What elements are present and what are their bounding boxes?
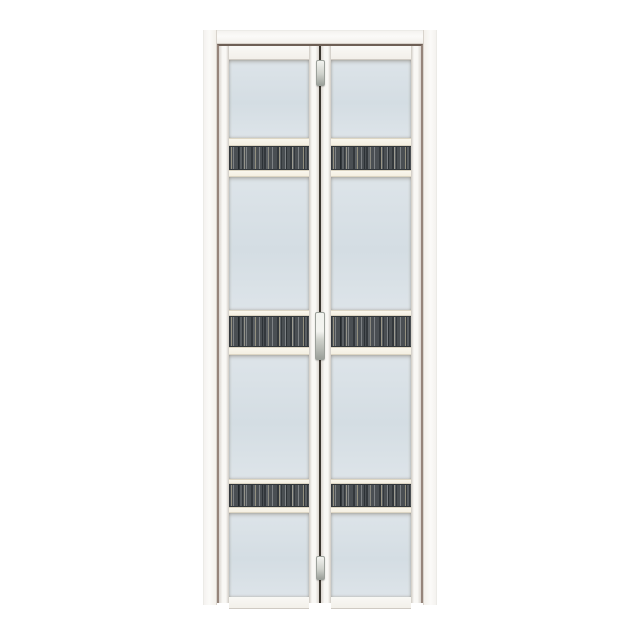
door-frame-left-jamb xyxy=(203,30,217,605)
leaf-glass xyxy=(229,60,309,138)
leaf-trim xyxy=(229,138,309,146)
leaf-glass xyxy=(331,60,411,138)
door-handle xyxy=(315,312,325,360)
leaf-glass xyxy=(229,513,309,597)
bifold-door xyxy=(203,30,437,605)
leaf-accent-strip xyxy=(331,484,411,507)
leaf-rail xyxy=(331,597,411,609)
leaf-trim xyxy=(229,170,309,177)
leaf-accent-strip xyxy=(331,146,411,170)
leaf-panel-column xyxy=(229,46,309,603)
leaf-glass xyxy=(229,355,309,479)
leaf-accent-strip xyxy=(229,316,309,347)
leaf-panel-column xyxy=(331,46,411,603)
door-leaf-right xyxy=(321,46,421,603)
leaf-accent-strip xyxy=(331,316,411,347)
leaf-stile-outer xyxy=(219,46,229,603)
pivot-hinge-top xyxy=(316,60,325,86)
leaf-accent-strip xyxy=(229,146,309,170)
leaf-glass xyxy=(331,513,411,597)
door-leaf-left xyxy=(219,46,319,603)
leaf-glass xyxy=(331,355,411,479)
door-frame-right-jamb xyxy=(423,30,437,605)
leaf-rail xyxy=(229,46,309,60)
door-frame-head xyxy=(203,30,437,44)
pivot-hinge-bottom xyxy=(316,556,325,580)
leaf-trim xyxy=(331,347,411,355)
photo-background xyxy=(0,0,640,640)
leaf-stile-outer xyxy=(411,46,421,603)
leaf-trim xyxy=(229,347,309,355)
leaf-glass xyxy=(229,177,309,310)
leaf-trim xyxy=(331,138,411,146)
leaf-glass xyxy=(331,177,411,310)
leaf-rail xyxy=(331,46,411,60)
leaf-rail xyxy=(229,597,309,609)
leaf-trim xyxy=(331,170,411,177)
leaf-accent-strip xyxy=(229,484,309,507)
